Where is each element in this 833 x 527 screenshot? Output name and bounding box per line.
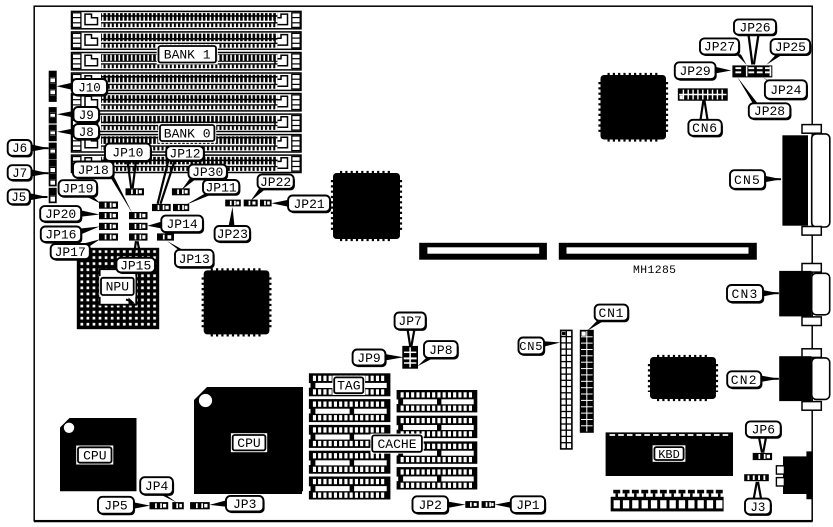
- svg-text:J10: J10: [78, 81, 101, 95]
- svg-text:J8: J8: [79, 126, 94, 140]
- svg-text:JP4: JP4: [145, 479, 169, 494]
- svg-text:JP23: JP23: [217, 227, 248, 242]
- svg-text:JP17: JP17: [55, 245, 86, 260]
- svg-text:BANK 1: BANK 1: [164, 48, 211, 63]
- svg-text:JP3: JP3: [233, 497, 256, 512]
- svg-text:CN3: CN3: [731, 287, 758, 302]
- svg-text:J5: J5: [11, 191, 26, 205]
- svg-text:JP18: JP18: [78, 163, 109, 178]
- svg-text:JP27: JP27: [704, 40, 735, 55]
- svg-text:J9: J9: [79, 109, 94, 123]
- svg-text:JP14: JP14: [166, 217, 197, 232]
- svg-text:CACHE: CACHE: [377, 437, 416, 452]
- svg-text:J7: J7: [12, 167, 27, 181]
- svg-text:CN1: CN1: [598, 306, 624, 321]
- svg-text:CN2: CN2: [731, 373, 758, 388]
- svg-text:JP29: JP29: [679, 64, 710, 79]
- svg-text:CPU: CPU: [83, 448, 106, 463]
- svg-text:JP26: JP26: [739, 20, 770, 35]
- svg-text:JP6: JP6: [752, 423, 775, 438]
- svg-text:CPU: CPU: [237, 436, 260, 451]
- svg-text:JP10: JP10: [112, 146, 143, 161]
- svg-text:J3: J3: [750, 501, 765, 515]
- svg-text:JP16: JP16: [45, 228, 76, 243]
- svg-text:JP22: JP22: [260, 175, 291, 190]
- svg-text:J6: J6: [12, 142, 27, 156]
- svg-text:JP9: JP9: [357, 351, 380, 366]
- svg-text:TAG: TAG: [337, 379, 360, 394]
- svg-text:JP19: JP19: [62, 182, 93, 197]
- svg-text:JP13: JP13: [179, 252, 210, 267]
- svg-text:JP24: JP24: [770, 83, 801, 98]
- svg-text:JP12: JP12: [169, 147, 200, 162]
- svg-text:JP25: JP25: [775, 40, 806, 55]
- svg-text:JP5: JP5: [104, 499, 127, 514]
- svg-text:JP1: JP1: [516, 498, 540, 513]
- svg-text:CN6: CN6: [692, 121, 718, 136]
- svg-text:JP2: JP2: [418, 498, 441, 513]
- svg-text:JP20: JP20: [45, 207, 76, 222]
- svg-text:CN5: CN5: [519, 340, 543, 354]
- svg-text:JP7: JP7: [398, 314, 421, 329]
- svg-text:JP21: JP21: [293, 197, 324, 212]
- svg-text:JP15: JP15: [120, 258, 151, 273]
- svg-text:NPU: NPU: [106, 280, 129, 295]
- svg-text:CN5: CN5: [734, 173, 761, 188]
- svg-text:JP11: JP11: [205, 180, 236, 195]
- svg-text:BANK 0: BANK 0: [164, 126, 211, 141]
- svg-text:KBD: KBD: [658, 448, 680, 462]
- svg-text:JP28: JP28: [754, 104, 785, 119]
- svg-text:JP30: JP30: [192, 165, 223, 180]
- svg-text:MH1285: MH1285: [633, 265, 676, 277]
- svg-text:JP8: JP8: [429, 343, 452, 358]
